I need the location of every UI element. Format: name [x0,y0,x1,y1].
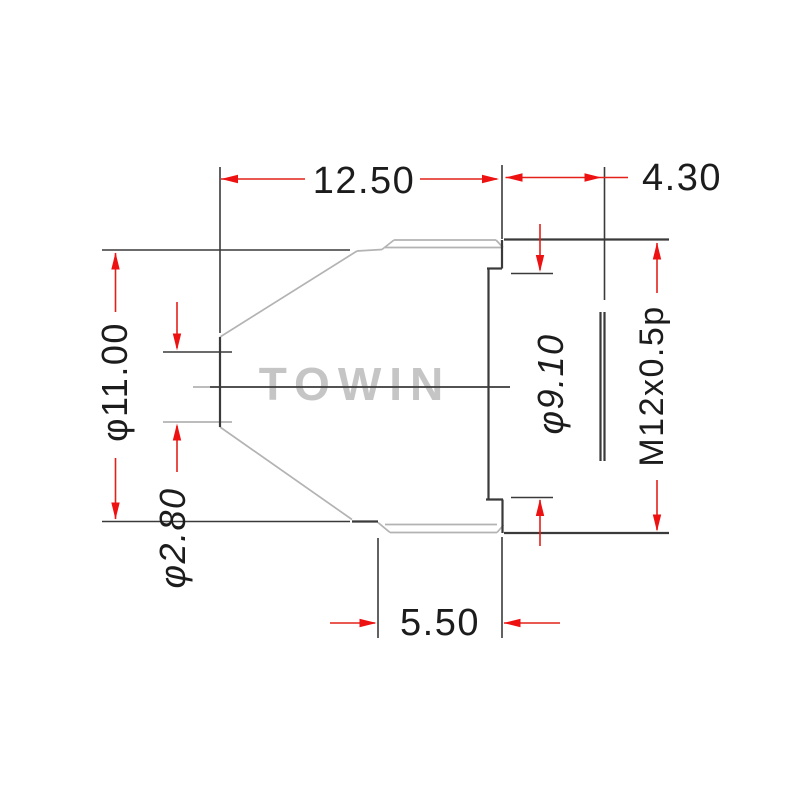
lens-barrel-drawing: TOWIN [0,0,800,800]
arrow-1250-right [482,175,499,183]
arrow-550-right [504,619,521,627]
top-shoulder-ledge [357,250,382,252]
arrow-dia91-bottom [536,499,544,516]
dim-thread-spec: M12x0.5p [635,305,669,466]
arrow-dia28-top [173,334,181,351]
dim-front-length: 12.50 [313,162,416,200]
arrow-430-right [585,173,602,181]
arrow-430-left [506,173,523,181]
arrow-dia28-bottom [173,424,181,441]
dimension-arrowheads [111,173,661,627]
arrow-dia91-top [536,255,544,272]
dim-barrel-outer-diameter: φ11.00 [97,322,133,442]
cone-top-edge [220,251,357,337]
cone-bottom-edge [220,427,352,520]
dim-aperture-diameter: φ2.80 [155,487,191,588]
dimension-lines [116,178,658,624]
dim-neck-diameter: φ9.10 [533,333,569,434]
arrow-550-left [360,619,377,627]
arrow-dia11-bottom [111,503,119,520]
arrow-dia11-top [111,253,119,270]
arrow-m12-top [653,243,661,260]
dim-front-cylinder-length: 5.50 [400,604,480,642]
arrow-m12-bottom [653,515,661,532]
dim-thread-length: 4.30 [642,159,722,197]
arrow-1250-left [221,175,238,183]
